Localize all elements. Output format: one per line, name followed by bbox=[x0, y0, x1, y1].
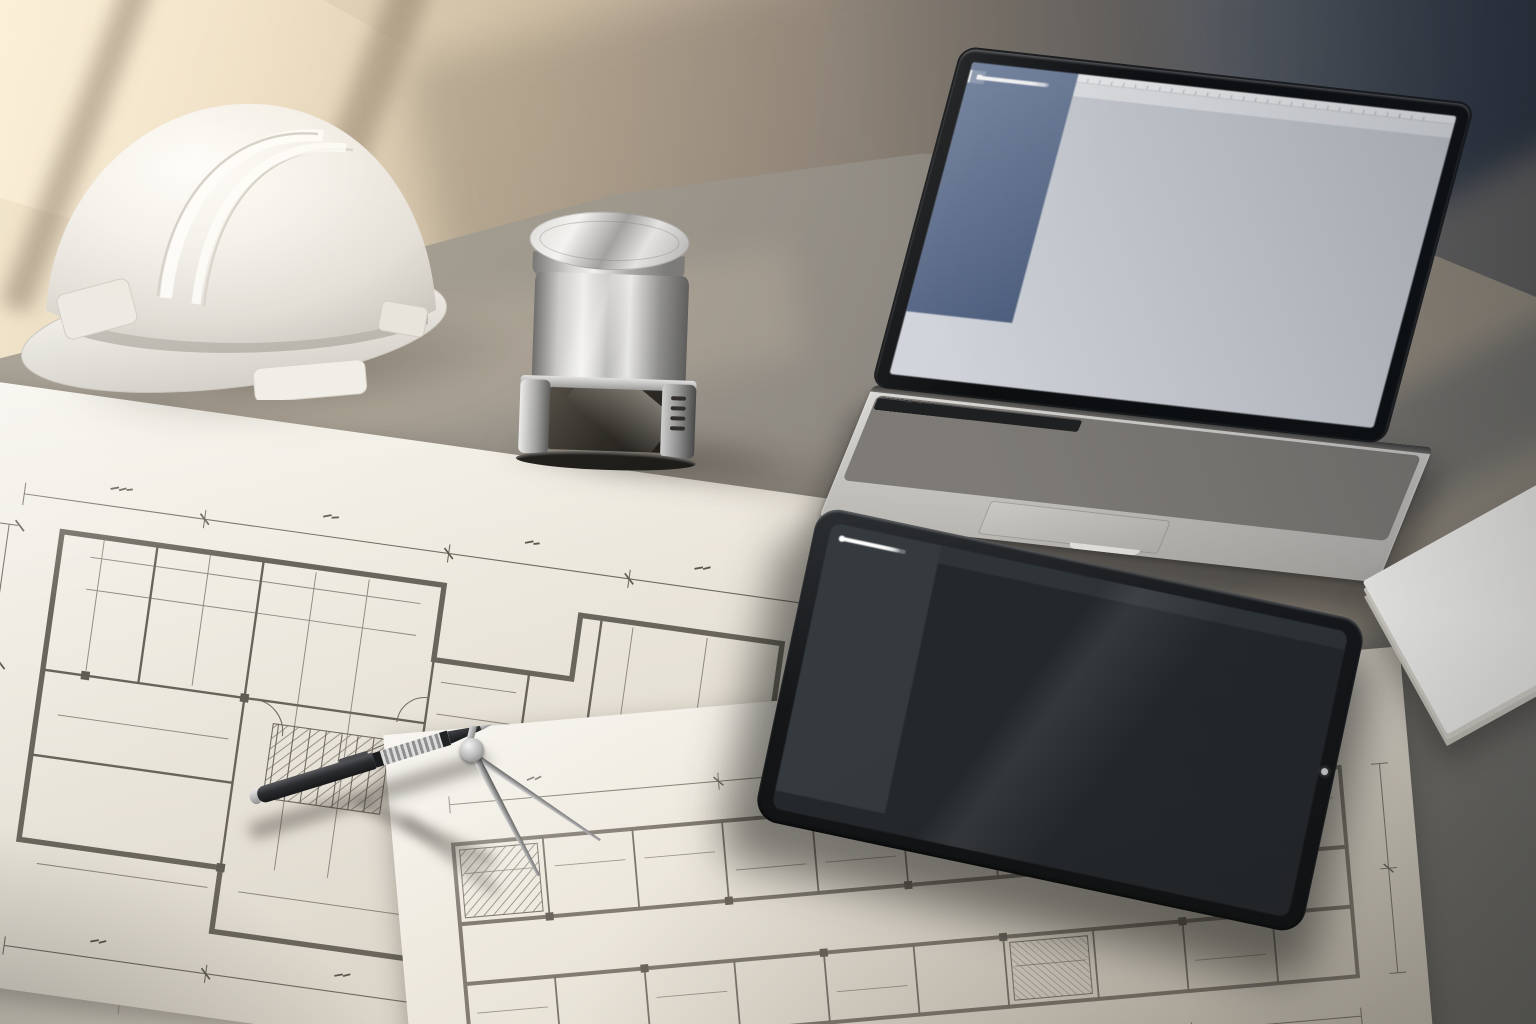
stamp-base-frame bbox=[518, 379, 696, 459]
layer-item bbox=[828, 529, 850, 547]
scene bbox=[0, 0, 1536, 1024]
tablet-camera bbox=[1320, 767, 1328, 775]
laptop-screen bbox=[873, 48, 1473, 442]
stamp-leg bbox=[660, 384, 697, 459]
hard-hat-graphic bbox=[8, 48, 460, 400]
compass bbox=[330, 730, 540, 905]
hard-hat bbox=[8, 48, 460, 400]
keyboard-key bbox=[874, 397, 909, 412]
compass-hinge-knob bbox=[460, 738, 484, 762]
stamp bbox=[514, 209, 708, 473]
stamp-leg bbox=[518, 379, 551, 454]
stamp-body bbox=[531, 271, 689, 388]
document-editor-ui bbox=[889, 62, 1456, 428]
stamp-cavity bbox=[546, 387, 668, 453]
doc-sidebar-item bbox=[967, 70, 986, 84]
